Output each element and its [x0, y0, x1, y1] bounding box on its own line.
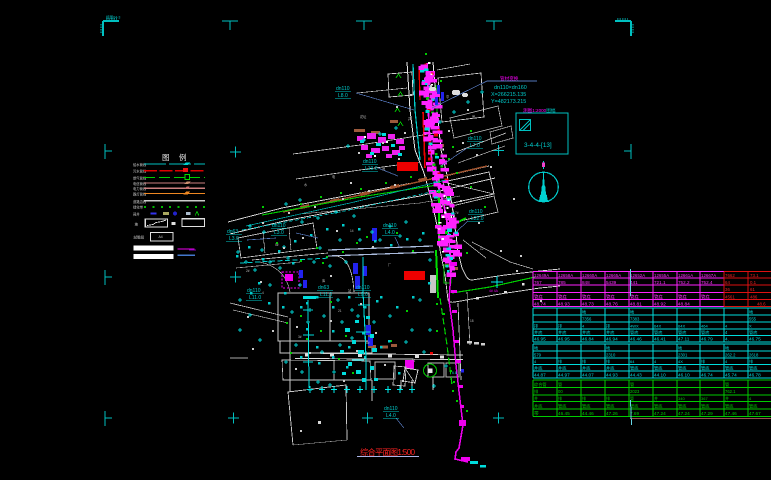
svg-text:3-4-4-[13]: 3-4-4-[13] [524, 142, 552, 149]
svg-text:管底: 管底 [725, 365, 733, 372]
svg-text:262.2: 262.2 [725, 352, 736, 357]
svg-text:48.81: 48.81 [630, 301, 642, 307]
svg-text:762.1: 762.1 [725, 389, 736, 394]
svg-text:12658A: 12658A [558, 273, 573, 278]
svg-text:管底: 管底 [678, 402, 686, 409]
svg-text:64X: 64X [654, 323, 661, 328]
svg-text:44.46: 44.46 [582, 411, 594, 416]
svg-text:46.78: 46.78 [749, 372, 761, 377]
svg-text:井底: 井底 [534, 365, 542, 372]
svg-text:管底: 管底 [701, 294, 710, 301]
svg-text:8#: 8# [366, 341, 370, 345]
svg-text:厂: 厂 [388, 263, 391, 267]
svg-text:12667A: 12667A [701, 273, 716, 278]
svg-text:排: 排 [606, 358, 610, 364]
svg-text:管底: 管底 [582, 294, 591, 301]
svg-text:2#: 2# [246, 269, 250, 273]
svg-text:房: 房 [472, 114, 475, 119]
svg-text:消: 消 [382, 166, 385, 171]
svg-text:44.93: 44.93 [606, 372, 618, 377]
svg-text:管底: 管底 [701, 365, 709, 372]
svg-text:46.95: 46.95 [534, 337, 546, 342]
svg-text:dn110×dn160: dn110×dn160 [494, 85, 527, 91]
svg-text:2301: 2301 [678, 352, 688, 357]
svg-text:管底: 管底 [654, 294, 663, 301]
svg-text:管底: 管底 [606, 402, 614, 409]
svg-text:6.8: 6.8 [452, 371, 457, 375]
svg-text:2023: 2023 [630, 389, 640, 394]
svg-text:井底: 井底 [534, 329, 542, 336]
svg-text:管底: 管底 [749, 329, 757, 336]
svg-text:486: 486 [750, 295, 758, 300]
svg-text:2310: 2310 [606, 352, 616, 357]
svg-text:管底: 管底 [654, 402, 662, 409]
svg-text:848: 848 [582, 280, 590, 285]
svg-text:12660A: 12660A [582, 273, 597, 278]
svg-text:排: 排 [606, 395, 610, 401]
svg-text:绿化带: 绿化带 [133, 205, 144, 210]
svg-text:4# 4A: 4# 4A [489, 289, 499, 293]
svg-text:排: 排 [534, 322, 538, 328]
svg-text:46.41: 46.41 [654, 337, 666, 342]
svg-text:接图04-3: 接图04-3 [106, 15, 120, 20]
svg-text:管: 管 [630, 381, 634, 388]
svg-text:排: 排 [558, 358, 562, 364]
svg-text:46.95: 46.95 [558, 337, 570, 342]
svg-text:48.73: 48.73 [582, 301, 594, 307]
svg-text:47.24: 47.24 [654, 411, 666, 416]
svg-text:管底: 管底 [534, 294, 543, 301]
svg-text:4X: 4X [678, 359, 683, 364]
svg-text:47.24: 47.24 [678, 411, 690, 416]
svg-text:48.6: 48.6 [757, 301, 766, 306]
svg-text:综合平面图1:500: 综合平面图1:500 [360, 447, 415, 457]
svg-text:管底: 管底 [725, 402, 733, 409]
svg-text:752.2: 752.2 [678, 280, 690, 285]
svg-text:井: 井 [408, 116, 411, 121]
svg-text:井底: 井底 [606, 365, 614, 372]
svg-text:5#: 5# [275, 243, 279, 247]
svg-text:排: 排 [582, 358, 586, 364]
svg-text:44.07: 44.07 [582, 372, 594, 377]
svg-text:47.46: 47.46 [725, 411, 737, 416]
svg-text:340: 340 [678, 396, 685, 401]
svg-text:47.29: 47.29 [701, 411, 713, 416]
svg-text:12665A: 12665A [606, 273, 621, 278]
svg-text:48.76: 48.76 [606, 301, 618, 307]
svg-text:12: 12 [480, 247, 484, 251]
svg-text:47.26: 47.26 [606, 411, 618, 416]
svg-text:14: 14 [350, 229, 354, 233]
svg-text:井: 井 [654, 395, 658, 401]
svg-text:44.87: 44.87 [534, 372, 546, 377]
svg-text:64: 64 [630, 359, 635, 364]
svg-text:00: 00 [558, 389, 563, 394]
svg-text:管底: 管底 [654, 329, 662, 336]
svg-text:井底: 井底 [534, 402, 542, 409]
svg-text:4WX: 4WX [630, 323, 639, 328]
svg-text:图: 图 [162, 153, 170, 162]
svg-text:46.75: 46.75 [749, 337, 761, 342]
svg-text:47.11: 47.11 [678, 337, 690, 342]
svg-text:管底: 管底 [678, 329, 686, 336]
svg-text:井: 井 [725, 395, 729, 401]
svg-text:46.94: 46.94 [606, 337, 618, 342]
svg-text:0.1: 0.1 [750, 280, 757, 285]
svg-text:441: 441 [630, 280, 638, 285]
svg-text:12655A: 12655A [654, 273, 669, 278]
svg-text:管: 管 [558, 381, 562, 388]
svg-text:4: 4 [262, 291, 264, 295]
svg-text:排: 排 [701, 358, 705, 364]
svg-text:亭: 亭 [446, 94, 449, 99]
svg-text:46.74: 46.74 [701, 372, 713, 377]
svg-text:5439: 5439 [606, 280, 617, 285]
svg-text:64: 64 [725, 280, 730, 285]
svg-text:61: 61 [750, 287, 755, 292]
svg-text:767: 767 [534, 280, 542, 285]
svg-text:464: 464 [701, 323, 708, 328]
svg-text:46.84: 46.84 [582, 337, 594, 342]
svg-text:管底: 管底 [701, 329, 709, 336]
svg-text:井底: 井底 [606, 329, 614, 336]
svg-text:721.1: 721.1 [654, 280, 666, 285]
svg-text:阀井: 阀井 [133, 212, 140, 217]
svg-text:7356: 7356 [582, 316, 592, 321]
svg-text:X: X [749, 323, 752, 328]
svg-text:47.67: 47.67 [749, 411, 761, 416]
svg-text:X=266215.135: X=266215.135 [491, 92, 526, 98]
svg-text:44.10: 44.10 [654, 372, 666, 377]
svg-text:7#: 7# [455, 211, 459, 215]
svg-text:井底: 井底 [558, 365, 566, 372]
svg-text:管底: 管底 [558, 294, 567, 301]
svg-text:48.74: 48.74 [534, 301, 546, 307]
svg-text:18: 18 [470, 319, 474, 323]
svg-text:44.97: 44.97 [558, 372, 570, 377]
svg-text:試驗段: 試驗段 [134, 235, 145, 240]
svg-text:785: 785 [558, 280, 566, 285]
svg-text:管底: 管底 [701, 402, 709, 409]
svg-text:46.79: 46.79 [701, 337, 713, 342]
svg-text:12652A: 12652A [630, 273, 645, 278]
svg-text:管底: 管底 [582, 402, 590, 409]
svg-text:64X: 64X [678, 323, 685, 328]
svg-text:管底: 管底 [558, 402, 566, 409]
svg-text:管底: 管底 [654, 365, 662, 372]
svg-text:管底: 管底 [606, 294, 615, 301]
svg-text:管底: 管底 [749, 365, 757, 372]
svg-text:管底: 管底 [630, 329, 638, 336]
svg-text:48.92: 48.92 [654, 301, 666, 307]
svg-text:花坛: 花坛 [360, 114, 367, 119]
svg-text:综合管: 综合管 [534, 381, 547, 388]
svg-text:排: 排 [749, 358, 753, 364]
svg-text:排: 排 [582, 395, 586, 401]
svg-text:管底: 管底 [630, 294, 639, 301]
svg-text:12661A: 12661A [678, 273, 693, 278]
svg-text:井: 井 [534, 395, 538, 401]
svg-text:4.: 4. [725, 337, 729, 342]
svg-text:A4: A4 [159, 235, 163, 239]
svg-text:井底: 井底 [558, 329, 566, 336]
svg-text:4561: 4561 [725, 295, 735, 300]
svg-text:3#: 3# [298, 335, 302, 339]
svg-text:12649A: 12649A [534, 273, 549, 278]
svg-text:坡: 坡 [135, 222, 139, 227]
svg-text:44.43: 44.43 [630, 372, 642, 377]
svg-text:555: 555 [749, 316, 757, 321]
svg-text:管底: 管底 [678, 365, 686, 372]
svg-text:752.4: 752.4 [701, 280, 713, 285]
svg-text:46.46: 46.46 [630, 337, 642, 342]
svg-text:21: 21 [338, 309, 342, 313]
svg-text:管底: 管底 [630, 365, 638, 372]
svg-text:46.45: 46.45 [558, 411, 570, 416]
svg-text:45.74: 45.74 [725, 372, 737, 377]
svg-text:367: 367 [701, 396, 708, 401]
svg-text:管底: 管底 [749, 402, 757, 409]
svg-text:管材变换: 管材变换 [500, 75, 519, 82]
svg-text:Y=482173.215: Y=482173.215 [491, 99, 526, 105]
svg-text:例: 例 [179, 152, 187, 162]
svg-text:管: 管 [725, 381, 729, 388]
svg-text:井底: 井底 [582, 329, 590, 336]
svg-text:管底: 管底 [678, 294, 687, 301]
svg-text:7383: 7383 [630, 316, 640, 321]
svg-text:2618: 2618 [749, 352, 759, 357]
svg-text:73.1: 73.1 [750, 273, 759, 278]
svg-text:579: 579 [534, 352, 542, 357]
svg-text:7662: 7662 [725, 273, 735, 278]
svg-text:排: 排 [558, 322, 562, 328]
svg-text:排: 排 [606, 322, 610, 328]
svg-text:井底: 井底 [582, 365, 590, 372]
svg-text:48.84: 48.84 [678, 301, 690, 307]
svg-text:48.93: 48.93 [558, 301, 570, 307]
svg-text:排: 排 [558, 395, 562, 401]
svg-text:46.10: 46.10 [678, 372, 690, 377]
svg-text:36: 36 [725, 287, 730, 292]
